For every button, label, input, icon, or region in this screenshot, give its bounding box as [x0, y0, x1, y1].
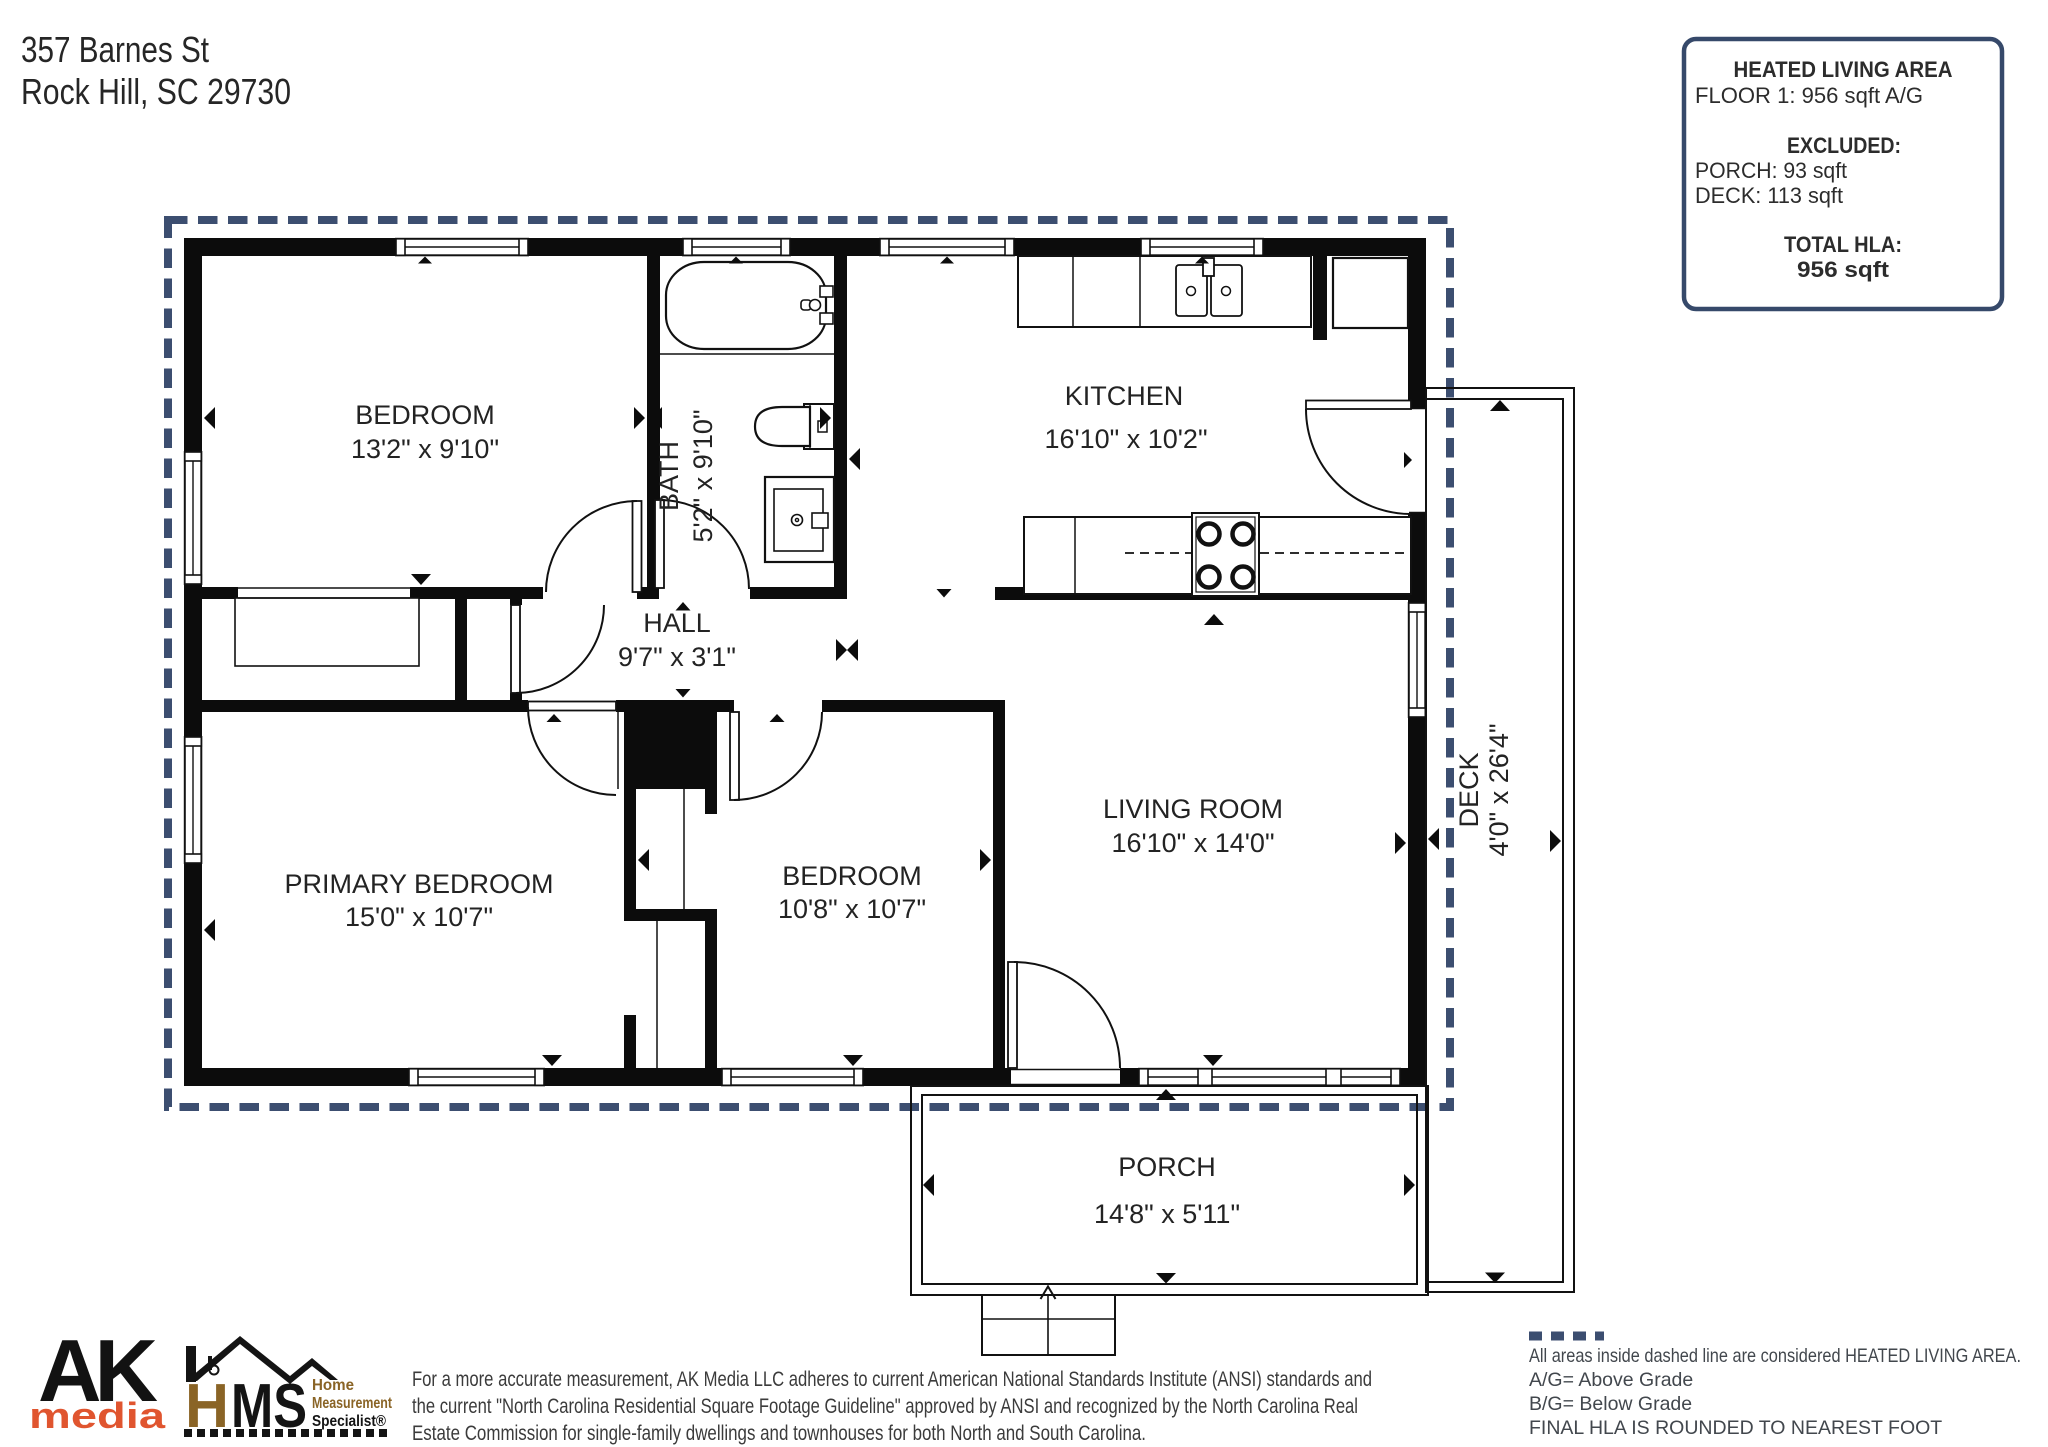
svg-text:DECK: DECK — [1454, 752, 1484, 827]
svg-text:PORCH: PORCH — [1118, 1152, 1216, 1182]
svg-text:16'10" x 10'2": 16'10" x 10'2" — [1044, 424, 1207, 454]
svg-text:FINAL HLA IS ROUNDED TO NEARES: FINAL HLA IS ROUNDED TO NEAREST FOOT — [1529, 1417, 1942, 1439]
svg-text:Home: Home — [312, 1377, 354, 1394]
svg-text:A/G= Above Grade: A/G= Above Grade — [1529, 1369, 1693, 1391]
svg-text:TOTAL HLA:: TOTAL HLA: — [1784, 232, 1902, 257]
svg-text:13'2" x 9'10": 13'2" x 9'10" — [351, 434, 499, 464]
svg-text:Measurement: Measurement — [312, 1395, 393, 1412]
svg-text:PORCH: 93 sqft: PORCH: 93 sqft — [1695, 158, 1847, 183]
svg-text:All areas inside dashed line a: All areas inside dashed line are conside… — [1529, 1345, 2021, 1367]
svg-text:9'7" x 3'1": 9'7" x 3'1" — [618, 642, 736, 672]
svg-text:956 sqft: 956 sqft — [1797, 257, 1890, 282]
svg-text:BEDROOM: BEDROOM — [782, 861, 922, 891]
svg-text:KITCHEN: KITCHEN — [1065, 381, 1184, 411]
svg-text:the current "North Carolina Re: the current "North Carolina Residential … — [412, 1395, 1358, 1418]
svg-text:Estate Commission for single-f: Estate Commission for single-family dwel… — [412, 1422, 1146, 1445]
svg-text:BATH: BATH — [654, 441, 684, 511]
svg-text:HEATED LIVING AREA: HEATED LIVING AREA — [1734, 57, 1953, 82]
svg-text:BEDROOM: BEDROOM — [355, 400, 495, 430]
svg-text:Specialist®: Specialist® — [312, 1413, 386, 1430]
svg-text:B/G= Below Grade: B/G= Below Grade — [1529, 1393, 1692, 1415]
svg-text:16'10" x 14'0": 16'10" x 14'0" — [1111, 828, 1274, 858]
svg-text:DECK: 113 sqft: DECK: 113 sqft — [1695, 183, 1843, 208]
svg-text:14'8" x 5'11": 14'8" x 5'11" — [1094, 1199, 1240, 1229]
svg-text:PRIMARY BEDROOM: PRIMARY BEDROOM — [284, 869, 553, 899]
svg-text:FLOOR 1: 956 sqft A/G: FLOOR 1: 956 sqft A/G — [1695, 83, 1923, 108]
svg-text:EXCLUDED:: EXCLUDED: — [1787, 133, 1901, 158]
svg-text:4'0" x 26'4": 4'0" x 26'4" — [1484, 723, 1514, 856]
svg-text:HALL: HALL — [643, 608, 711, 638]
svg-text:media: media — [29, 1395, 166, 1436]
svg-text:10'8" x 10'7": 10'8" x 10'7" — [778, 894, 926, 924]
svg-text:5'2" x 9'10": 5'2" x 9'10" — [688, 409, 718, 542]
svg-text:Rock Hill, SC 29730: Rock Hill, SC 29730 — [21, 71, 291, 112]
svg-text:357 Barnes St: 357 Barnes St — [21, 29, 209, 70]
svg-text:For a more accurate measuremen: For a more accurate measurement, AK Medi… — [412, 1368, 1372, 1391]
svg-text:15'0" x 10'7": 15'0" x 10'7" — [345, 902, 493, 932]
svg-text:LIVING ROOM: LIVING ROOM — [1103, 794, 1283, 824]
